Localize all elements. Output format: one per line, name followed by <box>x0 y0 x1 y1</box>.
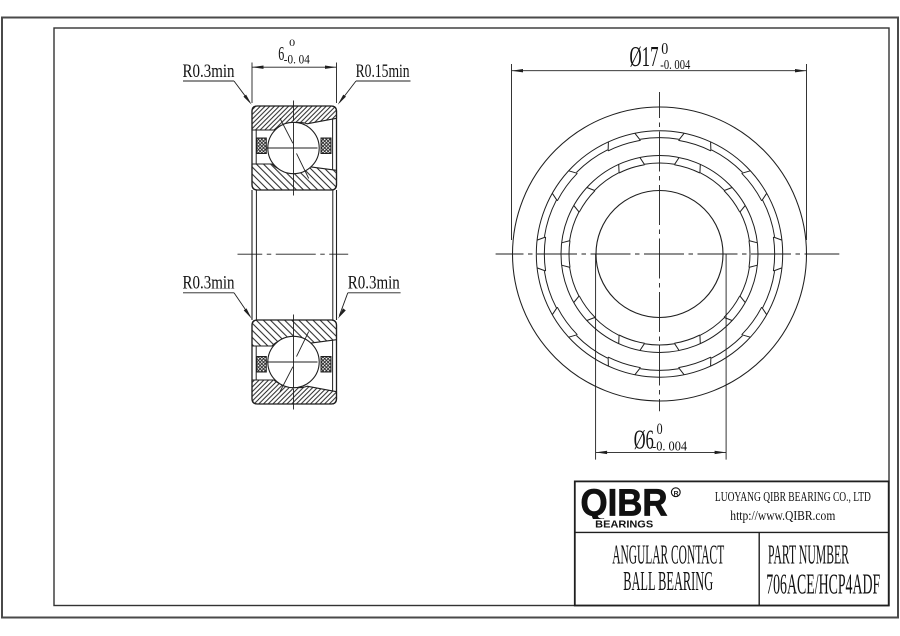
svg-text:PART NUMBER: PART NUMBER <box>768 539 849 569</box>
svg-text:http://www.QIBR.com: http://www.QIBR.com <box>730 508 835 523</box>
svg-text:-0. 004: -0. 004 <box>660 58 690 73</box>
svg-text:BEARINGS: BEARINGS <box>595 519 653 530</box>
svg-text:0: 0 <box>657 421 663 438</box>
svg-text:-0. 004: -0. 004 <box>652 440 687 455</box>
svg-text:-0. 04: -0. 04 <box>284 52 310 67</box>
svg-text:R0.3min: R0.3min <box>183 273 235 294</box>
svg-text:BALL BEARING: BALL BEARING <box>623 566 713 596</box>
svg-text:LUOYANG QIBR BEARING CO., LTD: LUOYANG QIBR BEARING CO., LTD <box>715 489 871 504</box>
svg-text:QIBR: QIBR <box>581 483 668 525</box>
svg-text:0: 0 <box>289 39 295 49</box>
svg-text:Ø6: Ø6 <box>634 425 654 455</box>
svg-text:Ø17: Ø17 <box>630 42 659 73</box>
svg-text:R: R <box>674 490 679 497</box>
svg-text:R0.3min: R0.3min <box>348 273 400 294</box>
svg-text:R0.15min: R0.15min <box>356 61 410 82</box>
svg-text:0: 0 <box>661 39 668 58</box>
svg-text:706ACE/HCP4ADF: 706ACE/HCP4ADF <box>766 570 880 601</box>
svg-text:R0.3min: R0.3min <box>183 61 235 82</box>
